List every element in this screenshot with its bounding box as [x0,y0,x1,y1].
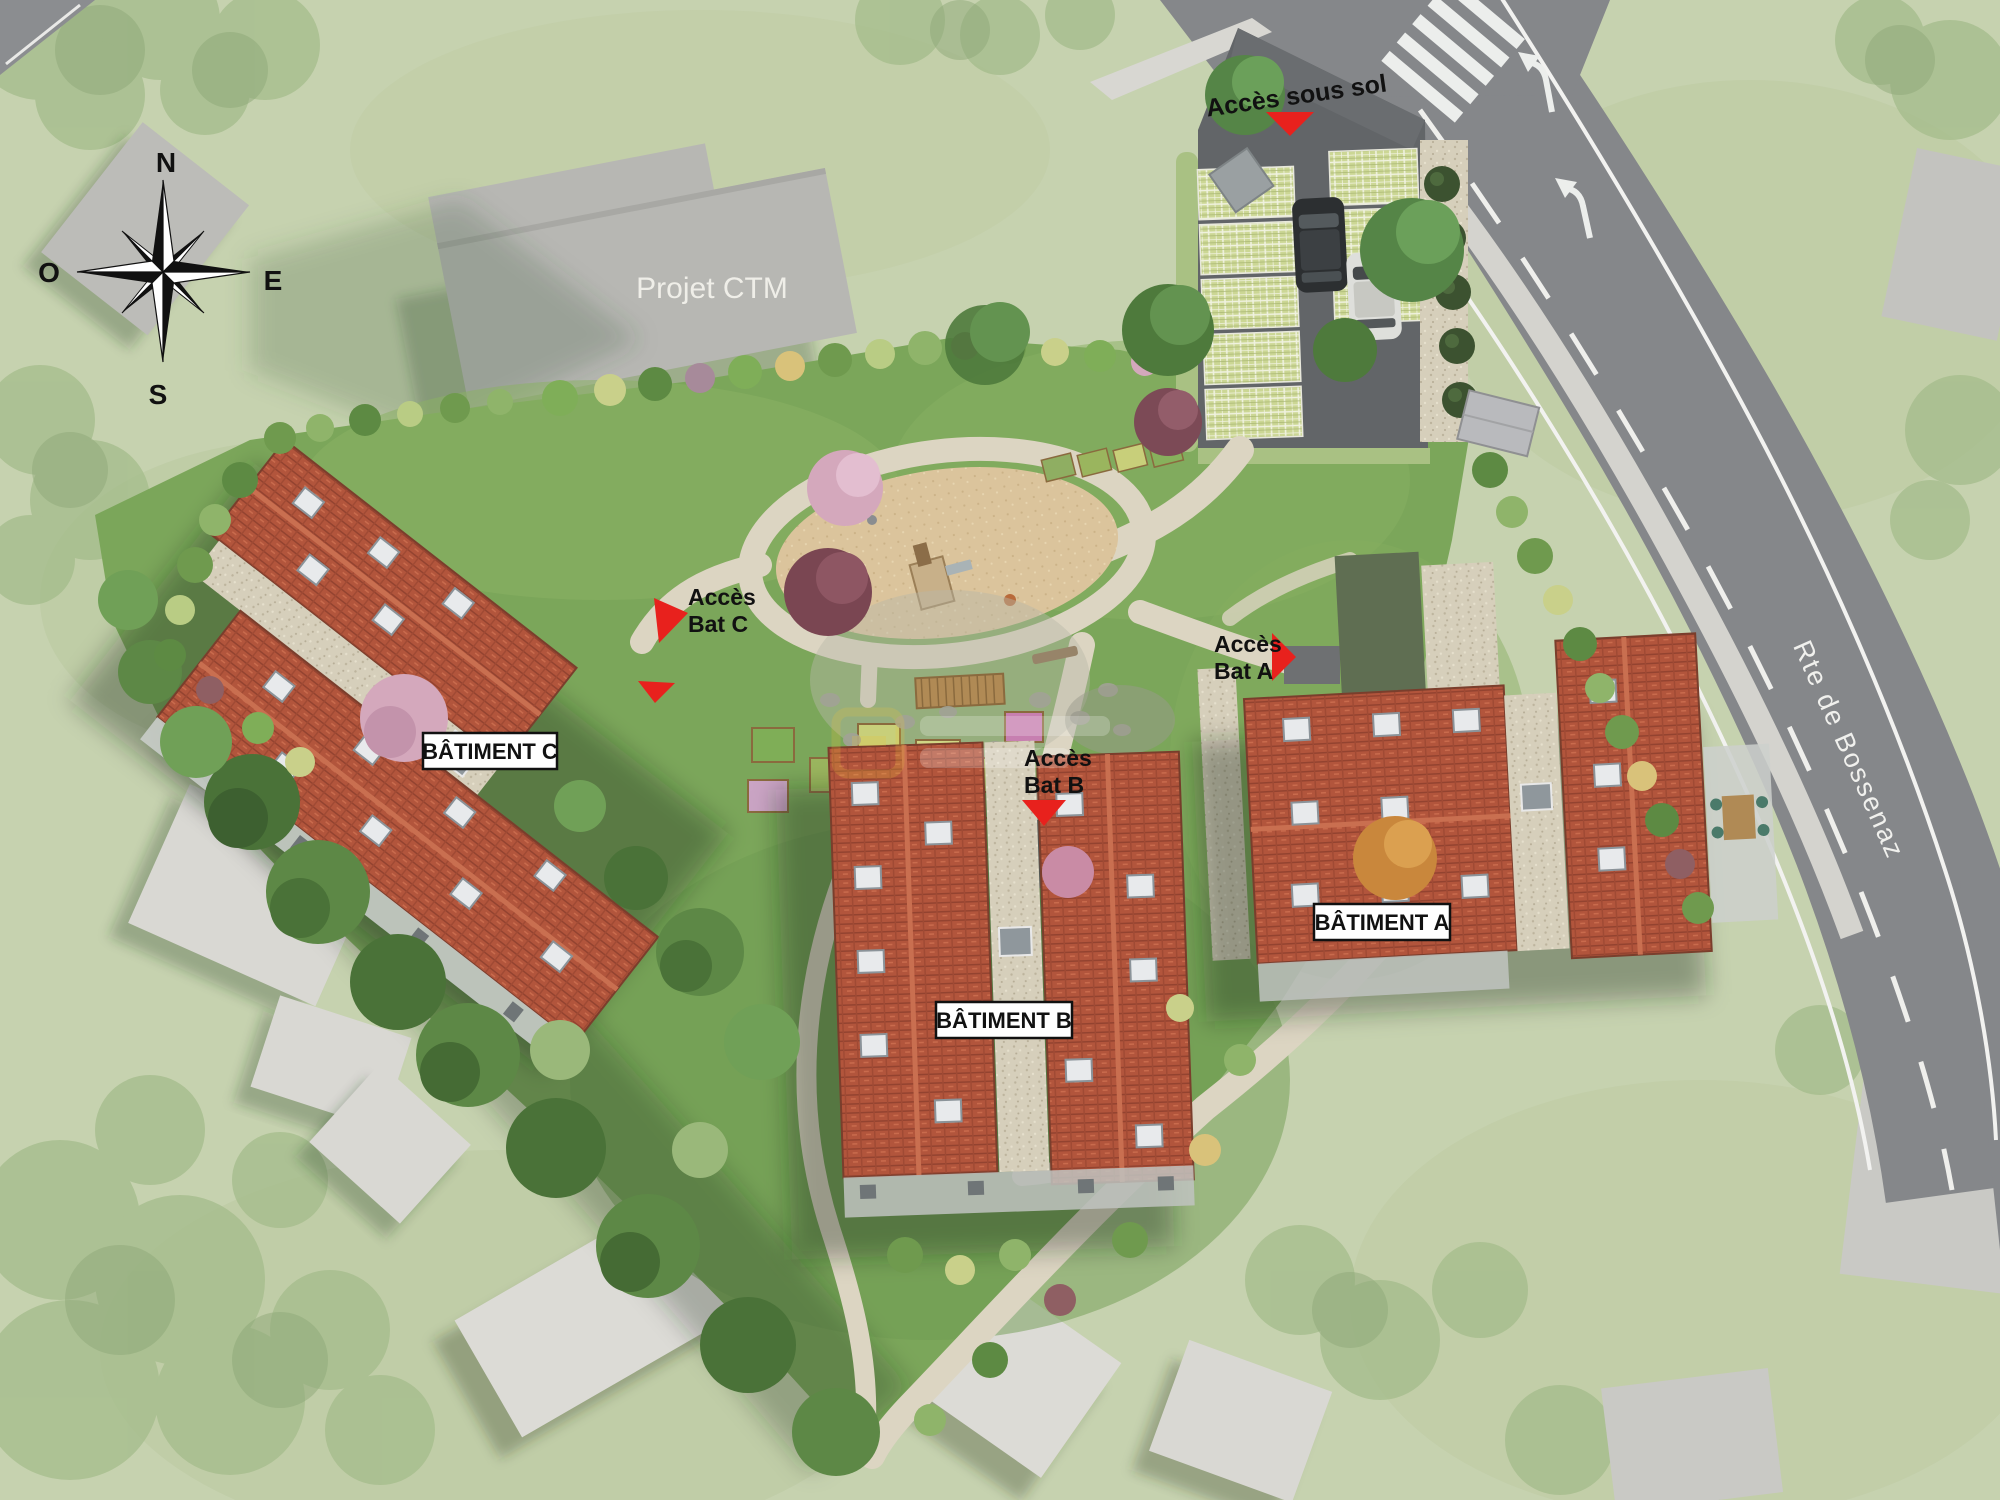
svg-text:Accès: Accès [1214,631,1282,657]
compass-south-label: S [149,379,168,410]
svg-text:Bat B: Bat B [1024,772,1084,798]
batiment-b-label: BÂTIMENT B [936,1002,1072,1038]
svg-text:BÂTIMENT A: BÂTIMENT A [1315,910,1450,935]
svg-text:Bat C: Bat C [688,611,748,637]
compass-west-label: O [38,257,60,288]
batiment-a-label: BÂTIMENT A [1314,904,1450,940]
batiment-c-label: BÂTIMENT C [422,733,558,769]
projet-ctm-label: Projet CTM [636,272,788,305]
batiment-a-entry [1284,646,1340,684]
compass-north-label: N [156,147,176,178]
svg-text:Accès: Accès [688,584,756,610]
svg-text:Bat A: Bat A [1214,658,1273,684]
pergola [915,674,1004,709]
svg-text:BÂTIMENT C: BÂTIMENT C [422,739,558,764]
car-dark [1292,197,1349,294]
access-bat-b-label: Accès Bat B [1024,745,1092,798]
svg-text:Accès: Accès [1024,745,1092,771]
svg-text:BÂTIMENT B: BÂTIMENT B [936,1008,1072,1033]
site-plan: Projet CTM Accès sous sol Accès Bat C Ac… [0,0,2000,1500]
access-bat-c-label: Accès Bat C [688,584,756,637]
compass-east-label: E [264,265,283,296]
access-bat-a-label: Accès Bat A [1214,631,1282,684]
batiment-b [775,736,1197,1260]
